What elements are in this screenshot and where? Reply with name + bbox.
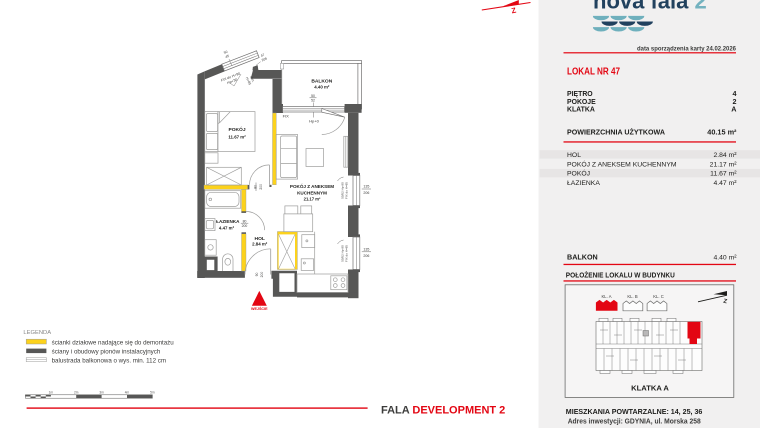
svg-text:2m: 2m (74, 391, 79, 395)
svg-text:Hp+0: Hp+0 (309, 118, 319, 123)
svg-text:200: 200 (259, 184, 263, 190)
svg-text:KUCHENNYM: KUCHENNYM (297, 191, 327, 196)
svg-text:21.17 m²: 21.17 m² (304, 197, 321, 202)
svg-text:4m: 4m (125, 391, 130, 395)
svg-text:POKOJE: POKOJE (567, 99, 596, 106)
svg-text:206: 206 (363, 191, 369, 195)
svg-text:2.84 m²: 2.84 m² (713, 152, 737, 159)
svg-text:40.15 m²: 40.15 m² (707, 128, 737, 137)
svg-text:ścianki działowe nadające się: ścianki działowe nadające się do demonta… (52, 339, 175, 346)
svg-text:KL. C: KL. C (653, 294, 663, 299)
svg-text:POKÓJ Z ANEKSEM: POKÓJ Z ANEKSEM (290, 182, 334, 189)
svg-text:2.84 m²: 2.84 m² (252, 242, 268, 247)
svg-text:206: 206 (363, 254, 369, 258)
svg-text:MIESZKANIA POWTARZALNE: 14, 25: MIESZKANIA POWTARZALNE: 14, 25, 36 (566, 407, 703, 416)
svg-text:5m: 5m (150, 391, 155, 395)
svg-text:POWIERZCHNIA UŻYTKOWA: POWIERZCHNIA UŻYTKOWA (567, 128, 666, 137)
svg-text:80: 80 (254, 185, 258, 189)
svg-text:135: 135 (363, 247, 369, 251)
svg-text:11.67 m²: 11.67 m² (710, 171, 737, 178)
svg-text:4.40 m²: 4.40 m² (713, 254, 737, 261)
svg-text:FALA DEVELOPMENT 2: FALA DEVELOPMENT 2 (381, 405, 505, 417)
svg-text:LOKAL NR 47: LOKAL NR 47 (567, 67, 620, 78)
svg-text:BALKON: BALKON (567, 252, 598, 261)
svg-text:HOL: HOL (567, 152, 581, 159)
svg-text:1m: 1m (49, 391, 54, 395)
svg-text:50: 50 (311, 94, 315, 98)
svg-text:135: 135 (363, 185, 369, 189)
svg-text:A: A (731, 105, 736, 114)
svg-text:52: 52 (311, 98, 315, 102)
svg-text:LEGENDA: LEGENDA (23, 330, 51, 336)
svg-text:FIX: FIX (283, 114, 290, 119)
svg-text:KL. B: KL. B (627, 294, 637, 299)
svg-text:3m: 3m (99, 391, 104, 395)
svg-text:ŁAZIENKA: ŁAZIENKA (216, 219, 240, 224)
svg-text:KLATKA: KLATKA (567, 107, 595, 114)
svg-text:FIX do H=85: FIX do H=85 (345, 182, 349, 199)
svg-text:200: 200 (242, 224, 248, 228)
svg-text:POKÓJ: POKÓJ (567, 169, 590, 178)
svg-text:4.40 m²: 4.40 m² (314, 85, 330, 90)
svg-text:PIĘTRO: PIĘTRO (567, 91, 593, 98)
svg-text:4.47 m²: 4.47 m² (713, 180, 737, 187)
svg-text:Adres inwestycji: GDYNIA, ul.: Adres inwestycji: GDYNIA, ul. Morska 258 (568, 416, 701, 425)
svg-text:data sporządzenia karty 24.02.: data sporządzenia karty 24.02.2026 (637, 46, 736, 53)
svg-text:POŁOŻENIE LOKALU W BUDYNKU: POŁOŻENIE LOKALU W BUDYNKU (566, 271, 675, 280)
svg-text:4.47 m²: 4.47 m² (219, 225, 235, 230)
svg-text:balustrada balkonowa o wys. mi: balustrada balkonowa o wys. min. 112 cm (52, 358, 166, 365)
svg-text:POKÓJ Z ANEKSEM KUCHENNYM: POKÓJ Z ANEKSEM KUCHENNYM (567, 159, 677, 168)
svg-text:ŁAZIENKA: ŁAZIENKA (567, 180, 600, 187)
svg-text:200: 200 (260, 272, 264, 278)
svg-text:FIX do H=85: FIX do H=85 (345, 245, 349, 262)
svg-text:ściany i obudowy pionów instal: ściany i obudowy pionów instalacyjnych (52, 349, 161, 356)
svg-text:KL. A: KL. A (601, 294, 611, 299)
svg-text:nova fala 2: nova fala 2 (593, 0, 707, 13)
svg-text:WEJŚCIE: WEJŚCIE (251, 306, 268, 311)
svg-text:KLATKA A: KLATKA A (631, 384, 669, 393)
svg-text:11.67 m²: 11.67 m² (228, 135, 246, 140)
svg-text:80: 80 (243, 219, 247, 223)
svg-text:90: 90 (255, 273, 259, 277)
svg-text:21.17 m²: 21.17 m² (710, 161, 738, 168)
